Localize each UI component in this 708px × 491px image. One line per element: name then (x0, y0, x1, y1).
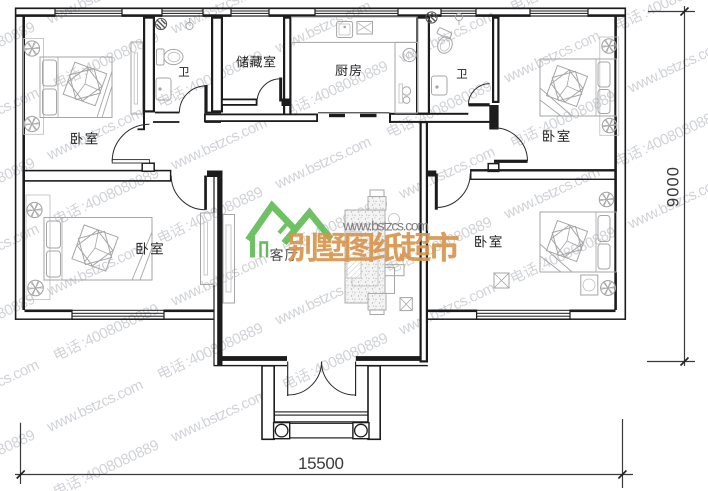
svg-text:www.bstzcs.com: www.bstzcs.com (342, 218, 429, 234)
svg-text:9000: 9000 (665, 167, 683, 207)
svg-text:15500: 15500 (298, 454, 344, 473)
